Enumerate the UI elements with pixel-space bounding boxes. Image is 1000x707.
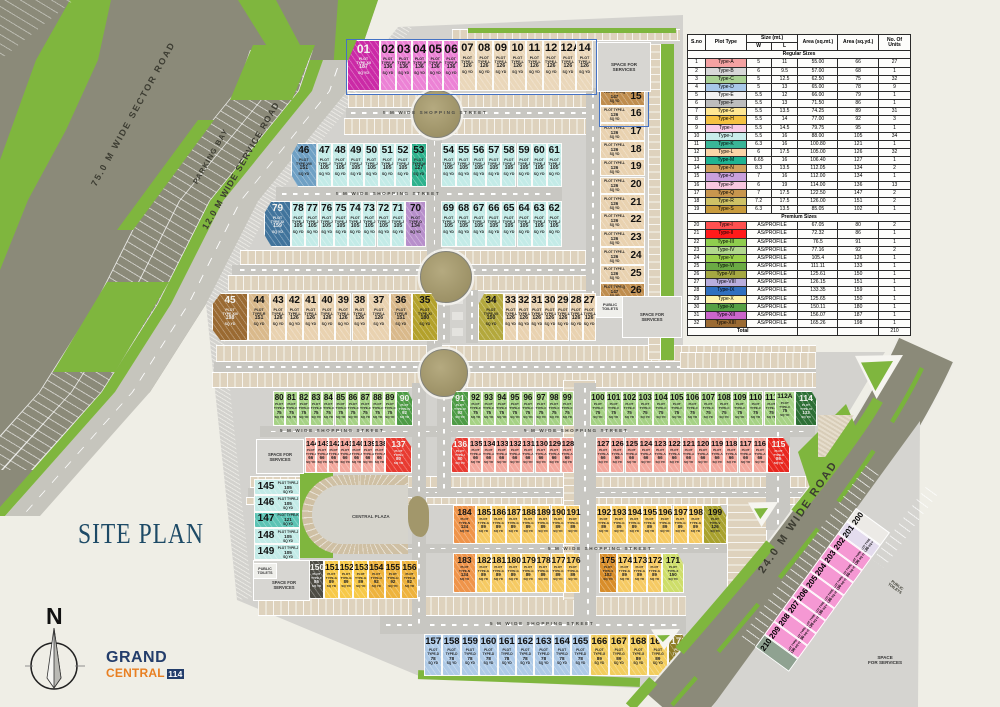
svg-text:N: N [46, 603, 63, 629]
